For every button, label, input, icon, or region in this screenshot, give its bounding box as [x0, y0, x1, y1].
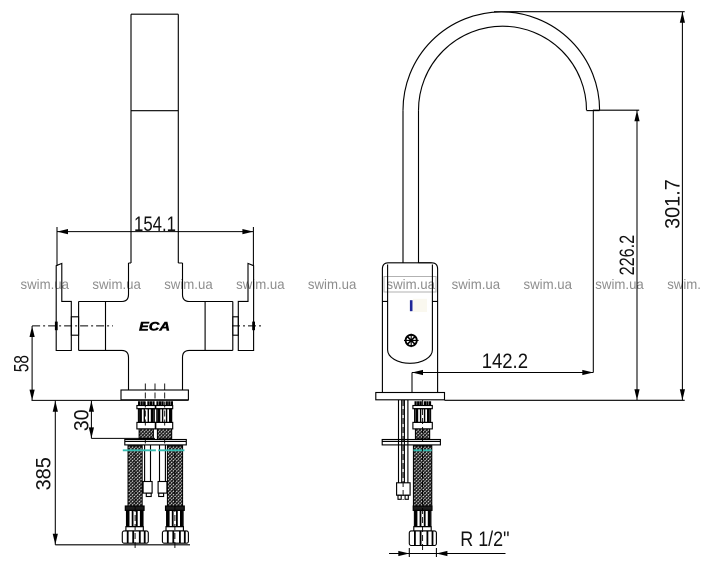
- svg-text:swim.ua: swim.ua: [236, 276, 285, 292]
- svg-text:30: 30: [70, 410, 93, 432]
- svg-text:swim.ua: swim.ua: [667, 276, 701, 292]
- svg-text:swim.ua: swim.ua: [92, 276, 141, 292]
- svg-text:154.1: 154.1: [134, 213, 176, 236]
- svg-text:58: 58: [10, 355, 33, 372]
- svg-text:301.7: 301.7: [662, 179, 685, 229]
- svg-text:swim.ua: swim.ua: [164, 276, 213, 292]
- svg-text:swim.ua: swim.ua: [524, 276, 573, 292]
- svg-text:142.2: 142.2: [482, 350, 528, 373]
- svg-text:swim.ua: swim.ua: [308, 276, 357, 292]
- svg-text:226.2: 226.2: [616, 235, 639, 276]
- svg-text:R 1/2": R 1/2": [460, 528, 509, 551]
- svg-text:385: 385: [32, 457, 55, 490]
- svg-text:swim.ua: swim.ua: [452, 276, 501, 292]
- svg-text:ECA: ECA: [139, 320, 170, 334]
- svg-text:swim.ua: swim.ua: [387, 276, 436, 292]
